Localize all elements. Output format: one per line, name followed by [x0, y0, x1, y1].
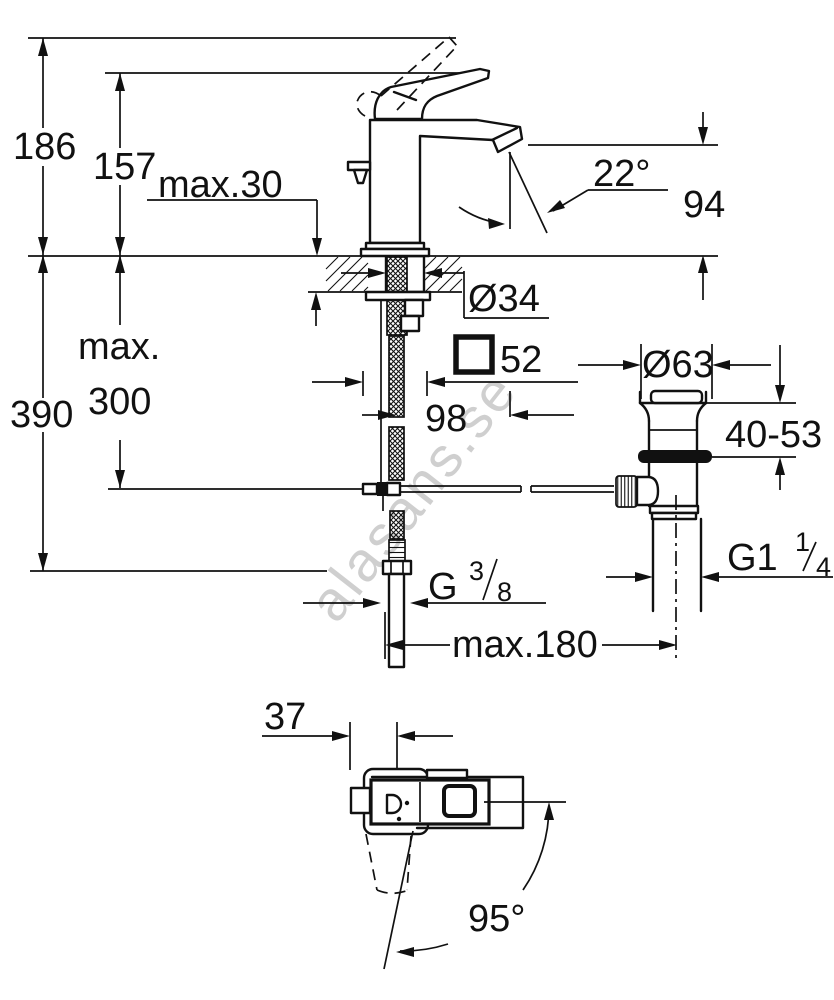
pop-up-waste	[616, 391, 712, 659]
dim-label: 157	[93, 146, 156, 188]
dim-label: 186	[13, 126, 76, 168]
rod-knob-knurled	[618, 476, 636, 507]
dim-label: 37	[264, 696, 306, 738]
dim-label: Ø63	[642, 344, 714, 386]
waste-cap	[651, 391, 702, 403]
plan-spout-outlet	[444, 786, 475, 816]
dim-label: 1	[795, 527, 810, 557]
rod-coupler	[363, 482, 400, 496]
dim-label: G1	[727, 537, 778, 579]
braided-hose-upper	[389, 336, 404, 417]
dim-label: 300	[88, 381, 151, 423]
dim-label: Ø34	[468, 278, 540, 320]
front-view: 186 157 max.30 22° 94	[10, 37, 833, 667]
waste-seal-ring	[638, 450, 712, 463]
watermark: alasans.se	[296, 359, 529, 632]
faucet	[348, 37, 547, 256]
plan-swing-line	[384, 831, 413, 969]
dim-hose-max300: max. 300	[78, 255, 160, 488]
lever-handle	[375, 69, 489, 119]
plan-view: 37 95°	[262, 696, 566, 969]
dim-label: 52	[500, 339, 542, 381]
dim-label: 22°	[593, 153, 650, 195]
dim-label: 94	[683, 184, 725, 226]
dim-label: max.	[78, 326, 160, 368]
supply-nut	[383, 561, 411, 574]
dim-label: 40-53	[725, 414, 822, 456]
dim-lever-height-157: 157	[93, 73, 156, 255]
dim-total-height-186: 186	[13, 38, 76, 255]
dim-spout-angle-22: 22°	[547, 153, 668, 213]
plan-lever-rear	[427, 770, 467, 778]
dim-lever-offset-37: 37	[262, 696, 453, 770]
faucet-dimension-drawing: alasans.se	[0, 0, 834, 1000]
dim-label: 3	[469, 556, 484, 586]
technical-drawing-page: alasans.se	[0, 0, 834, 1000]
dim-deck-thickness-max30: max.30	[147, 164, 322, 326]
dim-spout-height-94: 94	[683, 112, 725, 300]
pop-up-rod	[108, 486, 614, 492]
water-stream	[459, 152, 547, 233]
rod-knob-stem	[637, 477, 658, 505]
dim-label: G	[428, 566, 458, 608]
dim-waste-thread-g114: G1 1 4	[606, 527, 833, 582]
dim-body-square-52: 52	[312, 337, 578, 396]
plan-lever-mark	[387, 795, 401, 813]
dim-under-deck-390: 390	[10, 255, 73, 571]
escutcheon	[361, 249, 429, 256]
dim-label: 98	[425, 398, 467, 440]
dim-label: 390	[10, 394, 73, 436]
dim-label: 95°	[468, 898, 525, 940]
pop-up-knob-tab	[348, 162, 370, 183]
dim-rod-reach-max180: max.180	[385, 612, 677, 666]
dim-label: max.180	[452, 624, 598, 666]
mounting-bracket	[405, 300, 423, 316]
plan-knob-tab	[351, 788, 370, 813]
plan-lever-swung-dashed	[366, 834, 411, 893]
supply-tube	[389, 574, 404, 667]
